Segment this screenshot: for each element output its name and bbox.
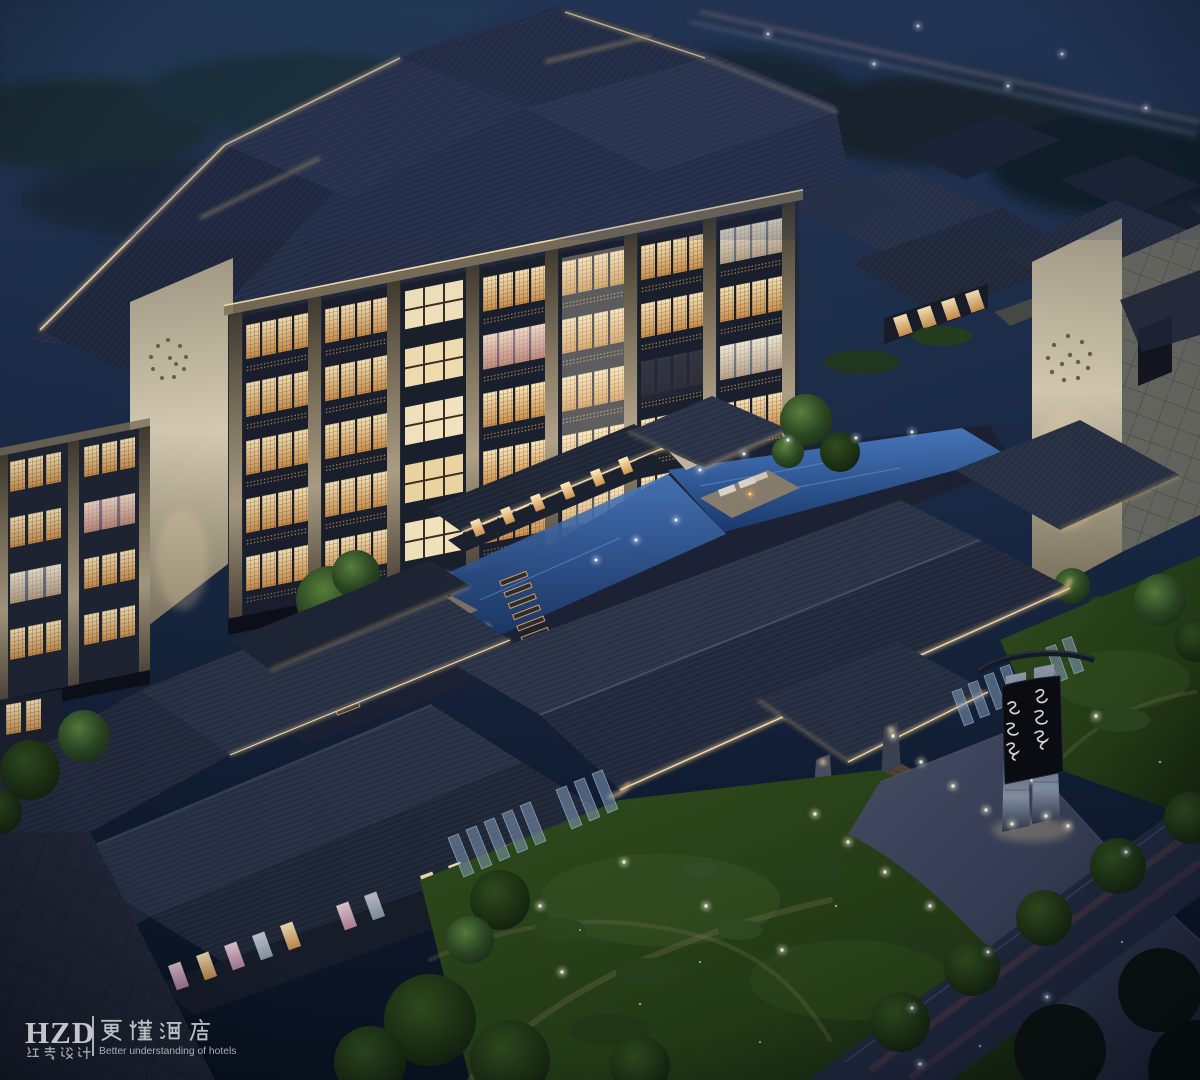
scene-root: HZD Better understanding of hotels [0, 0, 1200, 1080]
logo-divider [92, 1016, 94, 1056]
logo-acronym: HZD [25, 1015, 95, 1050]
architectural-rendering: HZD Better understanding of hotels [0, 0, 1200, 1080]
vignette [0, 0, 1200, 1080]
logo-tagline: Better understanding of hotels [99, 1046, 236, 1057]
